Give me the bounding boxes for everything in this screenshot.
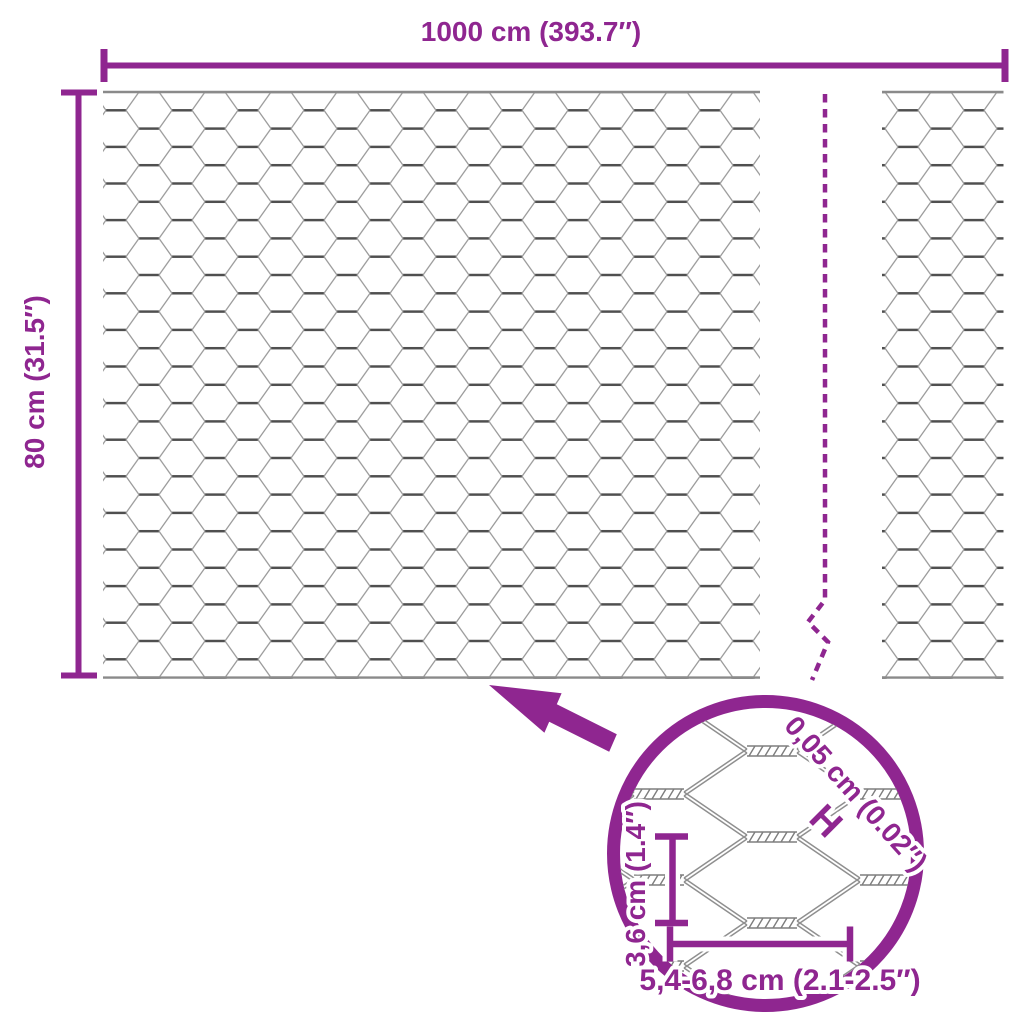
magnifier-arrow [489,685,617,752]
height-dimension: 80 cm (31.5″) [19,93,97,676]
product-dimension-diagram: 1000 cm (393.7″) 80 cm (31.5″) 3,6 cm (1… [0,0,1024,1024]
break-dashed-line [808,94,828,680]
diagram-canvas: 1000 cm (393.7″) 80 cm (31.5″) 3,6 cm (1… [0,0,1024,1024]
width-dimension: 1000 cm (393.7″) [103,16,1005,82]
magnifier-circle: 3,6 cm (1.4″) 5,4-6,8 cm (2.1-2.5″) H 0,… [600,688,934,1019]
detail-mesh-height-label: 3,6 cm (1.4″) [620,801,651,967]
detail-mesh-width-label: 5,4-6,8 cm (2.1-2.5″) [639,964,920,997]
width-dimension-label: 1000 cm (393.7″) [421,16,641,47]
mesh-panel-right [882,91,1004,679]
mesh-panel-main [103,91,760,679]
height-dimension-label: 80 cm (31.5″) [19,295,50,469]
